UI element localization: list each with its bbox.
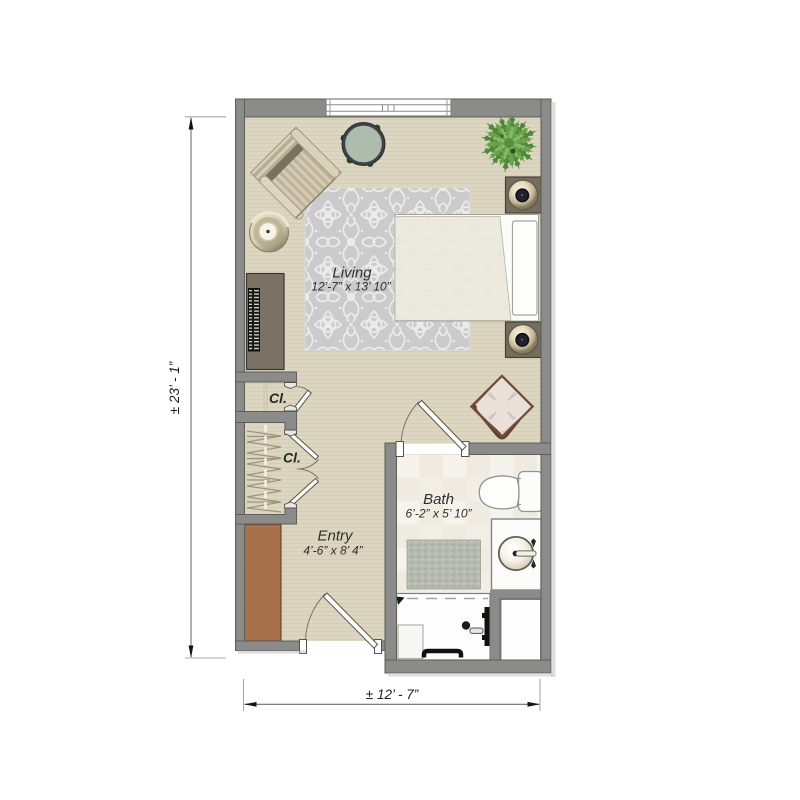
svg-text:± 12’ - 7”: ± 12’ - 7” [366, 687, 419, 702]
svg-text:6’-2” x 5’ 10”: 6’-2” x 5’ 10” [405, 507, 472, 521]
svg-text:Cl.: Cl. [283, 450, 301, 466]
svg-text:± 23’ - 1”: ± 23’ - 1” [167, 361, 182, 414]
svg-text:12’-7” x 13’ 10”: 12’-7” x 13’ 10” [311, 280, 391, 294]
svg-text:Bath: Bath [423, 491, 454, 508]
svg-text:Cl.: Cl. [269, 390, 287, 406]
svg-text:4’-6” x 8’ 4”: 4’-6” x 8’ 4” [303, 544, 363, 558]
svg-text:Entry: Entry [317, 528, 354, 545]
